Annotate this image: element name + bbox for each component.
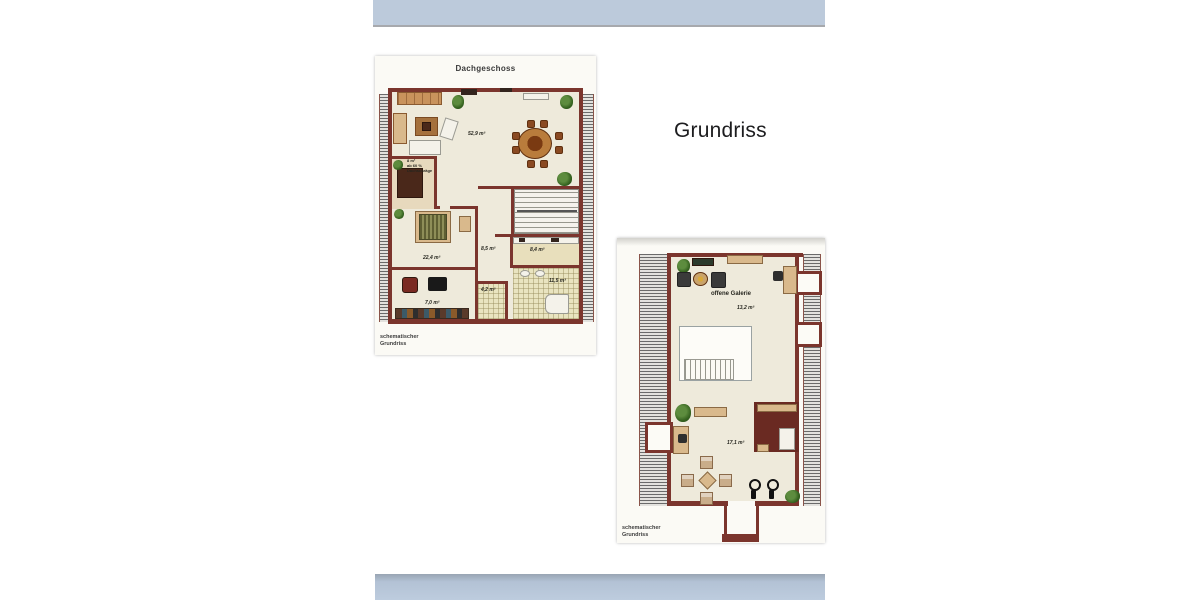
bath-sink xyxy=(520,270,530,277)
dormer-notch xyxy=(795,322,822,347)
shelf xyxy=(692,258,714,266)
plant-icon xyxy=(557,172,572,186)
roof-window-mark xyxy=(500,88,512,92)
area-label-room7: 7,0 m² xyxy=(425,300,439,306)
wall-wc-right xyxy=(505,281,508,319)
plan1-caption-line2: Grundriss xyxy=(380,341,419,348)
sideboard xyxy=(694,407,727,417)
wall-bottom-left xyxy=(667,501,728,506)
stairs-rail xyxy=(517,210,577,212)
dining-chair xyxy=(527,160,535,168)
sofa-top xyxy=(397,92,442,105)
bed xyxy=(779,428,795,450)
roof-hatch-right xyxy=(582,94,594,322)
sofa-white xyxy=(409,140,441,155)
plan2-caption-line1: schematischer xyxy=(622,525,661,532)
dormer-notch xyxy=(645,422,673,453)
page-title: Grundriss xyxy=(674,119,767,143)
plan1-title: Dachgeschoss xyxy=(375,64,596,73)
top-banner xyxy=(373,0,825,27)
wall-right xyxy=(579,88,583,324)
plant-icon xyxy=(394,209,404,219)
plant-icon xyxy=(677,259,690,273)
wall-bottom xyxy=(388,319,583,324)
dining-table xyxy=(518,128,552,159)
dining-chair xyxy=(555,132,563,140)
roof-hatch-left xyxy=(639,254,669,506)
area-label-bedroom: 22,4 m² xyxy=(423,255,440,261)
area-label-hall: 8,5 m² xyxy=(481,246,495,252)
photo-edge-shadow xyxy=(617,238,825,246)
desk-chair xyxy=(678,434,687,443)
shelf xyxy=(757,404,797,412)
sofa-left xyxy=(393,113,407,144)
desk xyxy=(783,266,797,294)
gallery-area-label: 13,2 m² xyxy=(737,305,754,311)
plant-icon xyxy=(393,160,403,170)
plant-icon xyxy=(675,404,691,422)
gallery-name-label: offene Galerie xyxy=(711,291,751,297)
seat-chair xyxy=(700,492,713,505)
dining-chair xyxy=(540,120,548,128)
exit-wall-right xyxy=(756,506,759,534)
lounge-chair xyxy=(677,272,691,287)
exercise-equipment-icon xyxy=(747,478,760,500)
area-label-wc: 4,2 m² xyxy=(481,287,495,293)
area-label-bath: 11,5 m² xyxy=(549,278,566,284)
slope-note: 8 m² ab 60 % Dachschräge xyxy=(407,158,432,173)
plant-icon xyxy=(560,95,573,109)
wall-left xyxy=(667,253,671,506)
dining-chair xyxy=(527,120,535,128)
seat-chair xyxy=(719,474,732,487)
wall-nook-right xyxy=(434,156,437,209)
floorplan-galerie-image: offene Galerie 13,2 m² 17,1 m² schematis… xyxy=(617,238,825,543)
dining-chair xyxy=(555,146,563,154)
wall-room7-top xyxy=(392,267,478,270)
sideboard xyxy=(523,93,549,100)
wall-bedroom-top-b xyxy=(450,206,478,209)
bed-mattress xyxy=(419,214,447,240)
room-area-label: 17,1 m² xyxy=(727,440,744,446)
area-label-living: 52,9 m² xyxy=(468,131,485,137)
plan1-caption-line1: schematischer xyxy=(380,334,419,341)
armchair xyxy=(402,277,418,293)
sink-mark xyxy=(551,238,559,242)
dormer-notch xyxy=(795,271,822,295)
floorplan-dachgeschoss-image: Dachgeschoss xyxy=(375,56,596,355)
plant-icon xyxy=(452,95,464,109)
wardrobe xyxy=(395,308,469,319)
dining-chair xyxy=(540,160,548,168)
bathtub xyxy=(545,294,569,314)
seat-chair xyxy=(681,474,694,487)
seat-chair xyxy=(700,456,713,469)
area-label-kitchen: 8,4 m² xyxy=(530,247,544,253)
exit-end-wall xyxy=(722,534,759,542)
plan1-caption: schematischer Grundriss xyxy=(380,334,419,347)
plan2-caption: schematischer Grundriss xyxy=(622,525,661,538)
side-table xyxy=(757,444,769,452)
bottom-banner xyxy=(375,574,825,600)
bedroom-desk xyxy=(459,216,471,232)
stove-mark xyxy=(519,238,525,242)
exit-wall-left xyxy=(724,506,727,534)
desk-chair xyxy=(773,271,783,281)
plan2-caption-line2: Grundriss xyxy=(622,532,661,539)
plant-icon xyxy=(785,490,800,503)
sideboard xyxy=(727,255,763,264)
exercise-equipment-icon xyxy=(765,478,778,500)
chimney-mark xyxy=(461,89,477,95)
tv-cabinet xyxy=(428,277,447,291)
stairs xyxy=(684,359,734,380)
slope-note-line3: Dachschräge xyxy=(407,168,432,173)
bath-sink xyxy=(535,270,545,277)
document-page: Grundriss Dachgeschoss xyxy=(0,0,1200,600)
coffee-table xyxy=(422,122,431,131)
round-table xyxy=(693,272,708,286)
lounge-chair xyxy=(711,272,726,288)
